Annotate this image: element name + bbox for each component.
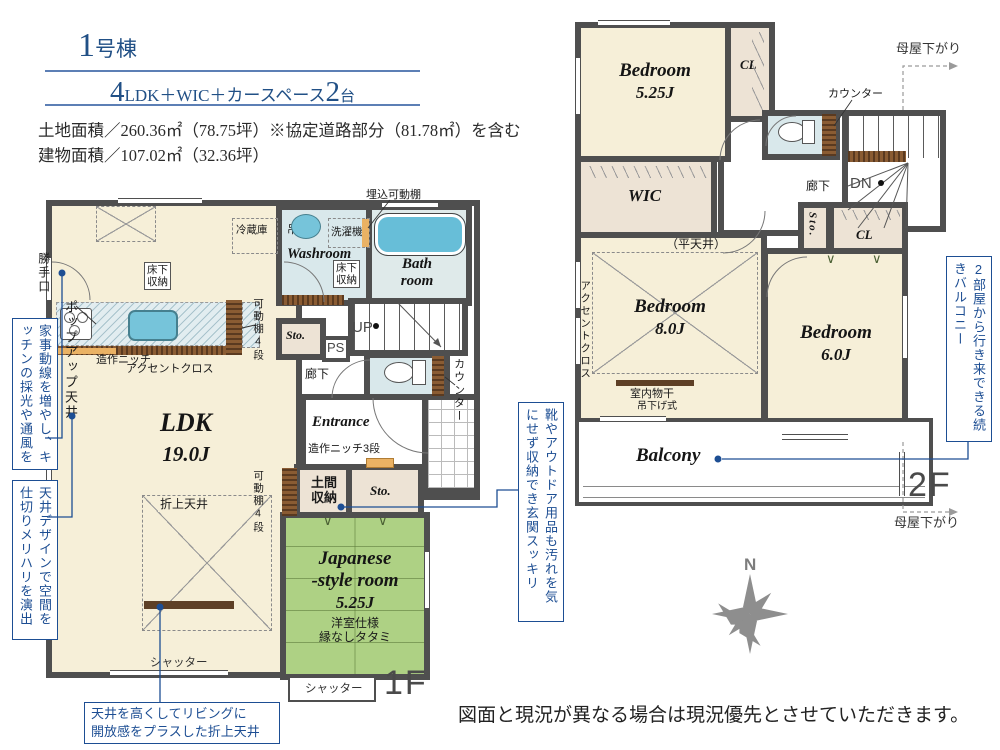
floor-storage-l2: 収納 (336, 274, 357, 286)
window (118, 198, 202, 204)
floor2-tag: 2F (908, 466, 952, 505)
hallway-label-2f: 廊下 (806, 180, 830, 194)
movable-shelf-kitchen (226, 300, 242, 355)
floor-storage-label-washroom: 床下収納 (333, 260, 360, 288)
doma-l2: 収納 (311, 490, 337, 505)
floor-storage-label-ldk: 床下収納 (144, 262, 171, 290)
annotation-housework: 家事動線を増やし、キッチンの採光や通風を (12, 318, 58, 470)
unit-suffix: 号棟 (95, 37, 137, 61)
ldk-label: LDK19.0J (130, 408, 242, 468)
cl2-hanger-rail (836, 210, 900, 220)
storage-entry-label: Sto. (370, 484, 391, 499)
sto2-label: Sto. (806, 212, 819, 237)
wic-hanger-rail (585, 166, 707, 178)
br1-name: Bedroom (619, 60, 691, 81)
indoor-drying-label: 室内物干 (630, 388, 674, 401)
annotation-coved-ceiling: 天井を高くしてリビングに開放感をプラスした折上天井 (84, 702, 280, 744)
stairs-up-label: UP (352, 319, 373, 336)
popup-ceiling-area (96, 206, 156, 242)
window (899, 452, 905, 496)
f2-stair-landing (848, 151, 906, 162)
jp-note2: 縁なしタタミ (319, 630, 391, 644)
backdoor-label: 勝手口 (36, 252, 50, 294)
stove-burner-icon (77, 312, 88, 323)
wic-label: WIC (628, 186, 661, 206)
bedroom3-label: Bedroom6.0J (778, 322, 894, 366)
entrance-label: Entrance (312, 414, 370, 431)
window (382, 202, 438, 208)
cl2-label: CL (856, 228, 873, 243)
movable-shelf-doma-label: 可動棚4段 (252, 470, 264, 534)
cl1-hanger-rail (752, 32, 764, 110)
window (575, 58, 581, 114)
hallway-label-1f: 廊下 (305, 368, 329, 382)
stairs-dn-label: DN (850, 175, 872, 192)
jp-size: 5.25J (336, 593, 374, 612)
bedroom2-label: Bedroom8.0J (610, 296, 730, 340)
f1-porch (422, 394, 480, 494)
closet-chevron: ∨ (378, 514, 388, 529)
balcony-railing (583, 486, 925, 498)
floor1-tag: 1F (384, 664, 428, 703)
moya-sagari-top: 母屋下がり (896, 42, 961, 57)
toilet-tank-2f (802, 120, 815, 144)
japanese-room-notes: 洋室仕様縁なしタタミ (290, 617, 420, 645)
window (575, 262, 581, 308)
annotation-entryway-storage: 靴やアウトドア用品も汚れを気にせず収納でき玄関スッキリ (518, 402, 564, 622)
popup-ceiling-label: ポップアップ天井 (62, 300, 77, 420)
window (424, 552, 430, 608)
flat-ceiling-label: （平天井） (664, 238, 728, 252)
closet-chevron: ∨ (826, 252, 836, 267)
annotation-coved-l2: 開放感をプラスした折上天井 (91, 724, 260, 739)
closet-chevron: ∨ (872, 252, 882, 267)
header-divider-bottom (45, 104, 420, 106)
niche3-label: 造作ニッチ3段 (308, 443, 380, 456)
compass-icon: N (690, 552, 810, 672)
japanese-room-label: Japanese-style room5.25J (290, 548, 420, 614)
annotation-coved-l1: 天井を高くしてリビングに (91, 706, 247, 721)
balcony-label: Balcony (636, 445, 700, 467)
bathroom-label: Bathroom (382, 256, 452, 291)
bath-l1: Bath (402, 256, 432, 272)
window (782, 434, 848, 440)
plan-mid: LDK＋WIC＋カースペース (124, 86, 325, 105)
fridge-label: 冷蔵庫 (236, 224, 268, 236)
washbasin-icon (291, 214, 321, 239)
accent-cloth-label-1f: アクセントクロス (126, 363, 213, 376)
movable-shelf-doma (282, 468, 297, 516)
recessed-shelf (362, 219, 369, 247)
counter-label-2f: カウンター (828, 88, 883, 101)
ldk-name: LDK (160, 408, 212, 437)
window (600, 416, 666, 422)
ps-label: PS (327, 341, 344, 356)
washroom-shelf (282, 295, 344, 305)
coved-ceiling-beam (144, 601, 234, 609)
shutter-label-ldk: シャッター (150, 657, 208, 670)
doma-storage-label: 土間収納 (303, 476, 345, 506)
hanging-type-label: 吊下げ式 (637, 401, 677, 413)
floor-storage-l2: 収納 (147, 276, 168, 288)
shutter-window (110, 670, 228, 676)
br2-size: 8.0J (655, 319, 685, 338)
toilet-counter-1f (432, 356, 444, 396)
entrance-niche-shelf (366, 458, 394, 468)
storage-hall-label: Sto. (286, 329, 305, 343)
bath-l2: room (401, 273, 434, 289)
movable-shelf-kitchen-label: 可動棚4段 (252, 298, 264, 362)
br3-name: Bedroom (800, 322, 872, 343)
unit-number: 1 (78, 27, 95, 64)
annotation-ceiling-design: 天井デザインで空間を仕切りメリハリを演出 (12, 480, 58, 640)
moya-sagari-bottom: 母屋下がり (894, 516, 959, 531)
toilet-icon-1f (384, 362, 414, 383)
plan-tail: 台 (340, 89, 355, 105)
coved-ceiling-label: 折上天井 (158, 498, 210, 512)
window (598, 20, 670, 26)
sink-icon (128, 310, 178, 341)
unit-title: 1号棟 (78, 26, 137, 65)
toilet-counter-2f (822, 114, 836, 156)
compass-n-label: N (744, 555, 756, 574)
recessed-shelf-label: 埋込可動棚 (366, 189, 421, 202)
jp-note1: 洋室仕様 (331, 616, 379, 630)
jp-l1: Japanese (319, 548, 392, 569)
jp-l2: -style room (311, 570, 398, 591)
land-area: 土地面積／260.36㎡（78.75坪）※協定道路部分（81.78㎡）を含む (38, 122, 521, 141)
counter-label-1f: カウンター (452, 358, 465, 423)
br1-size: 5.25J (636, 83, 674, 102)
disclaimer: 図面と現況が異なる場合は現況優先とさせていただきます。 (458, 705, 969, 727)
window (902, 296, 908, 358)
br3-size: 6.0J (821, 345, 851, 364)
shutter-label-japanese: シャッター (305, 683, 363, 696)
br2-name: Bedroom (634, 296, 706, 317)
ldk-size: 19.0J (162, 442, 209, 466)
closet-chevron: ∨ (323, 514, 333, 529)
drying-rod (616, 380, 694, 386)
floor-storage-l1: 床下 (336, 262, 357, 274)
header-divider-top (45, 70, 420, 72)
floorplan-page: 1号棟 4LDK＋WIC＋カースペース2台 土地面積／260.36㎡（78.75… (0, 0, 1000, 750)
doma-l1: 土間 (311, 475, 337, 490)
floor-storage-l1: 床下 (147, 264, 168, 276)
building-area: 建物面積／107.02㎡（32.36坪） (38, 147, 269, 166)
washer-label: 洗濯機 (331, 226, 363, 238)
toilet-tank-1f (412, 360, 426, 385)
bedroom1-label: Bedroom5.25J (600, 60, 710, 104)
bathtub-icon (374, 213, 466, 256)
window (575, 318, 581, 364)
annotation-balcony: 2部屋から行き来できる続きバルコニー (946, 256, 992, 442)
